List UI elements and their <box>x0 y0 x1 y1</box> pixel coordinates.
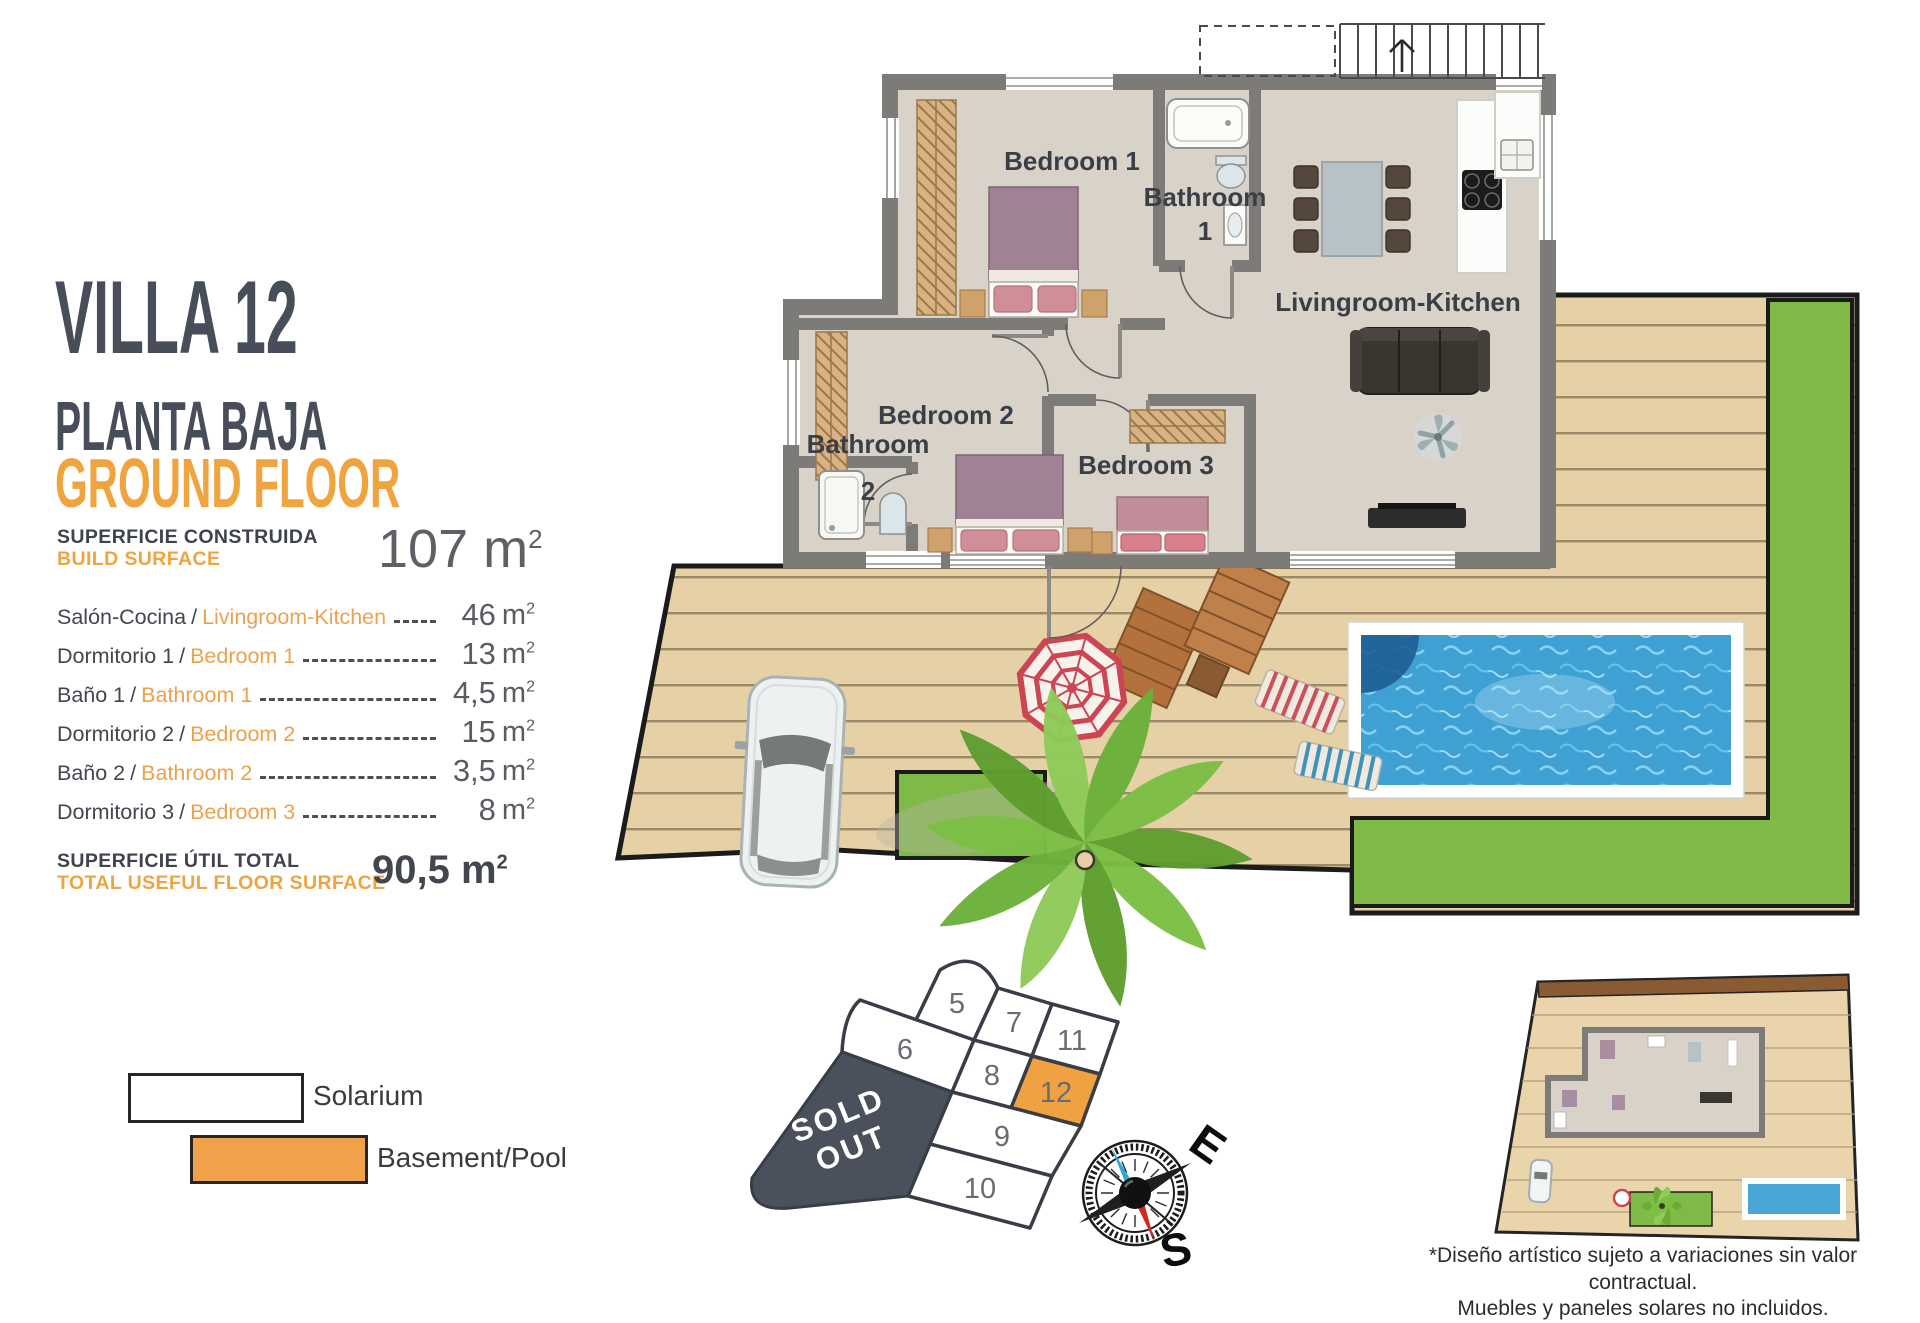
table-row: Dormitorio 2/Bedroom 2 15m2 <box>57 708 535 747</box>
compass-east-label: E <box>1181 1114 1236 1174</box>
row-unit: m <box>502 716 526 748</box>
bedroom2-label: Bedroom 2 <box>878 400 1014 430</box>
toilet2 <box>880 493 906 534</box>
plot-12-number: 12 <box>1040 1077 1072 1109</box>
mini-overview-plan <box>1496 975 1858 1240</box>
build-surface-number: 107 <box>378 519 468 579</box>
plot-9-number: 9 <box>994 1121 1010 1153</box>
ceiling-fan <box>1414 413 1462 461</box>
plot-6-number: 6 <box>897 1034 913 1066</box>
total-block: SUPERFICIE ÚTIL TOTAL TOTAL USEFUL FLOOR… <box>57 850 386 895</box>
table-row: Salón-Cocina/Livingroom-Kitchen 46m2 <box>57 591 535 630</box>
row-separator: / <box>191 605 197 630</box>
row-unit-exp: 2 <box>526 795 535 812</box>
total-label-es: SUPERFICIE ÚTIL TOTAL <box>57 850 386 872</box>
row-value: 4,5 <box>438 677 496 708</box>
plot-map: SOLD OUT 5 7 11 6 8 12 9 10 <box>751 961 1118 1228</box>
row-value: 15 <box>438 716 496 747</box>
row-value: 3,5 <box>438 755 496 786</box>
legend-label-basement-pool: Basement/Pool <box>377 1142 567 1174</box>
build-surface-exp: 2 <box>528 524 542 554</box>
dining-table <box>1322 162 1382 256</box>
table-row: Baño 1/Bathroom 1 4,5m2 <box>57 669 535 708</box>
total-value: 90,5 m2 <box>372 850 508 890</box>
legend-swatch-solarium <box>128 1073 304 1123</box>
sofa <box>1350 328 1490 394</box>
row-label-en: Livingroom-Kitchen <box>202 605 386 630</box>
compass-south-label: S <box>1155 1221 1196 1278</box>
build-surface-value: 107 m2 <box>378 522 543 576</box>
villa-title: VILLA 12 <box>55 266 298 370</box>
bedroom3-label: Bedroom 3 <box>1078 450 1214 480</box>
row-label-en: Bedroom 2 <box>190 722 295 747</box>
plot-8-number: 8 <box>984 1060 1000 1092</box>
total-number: 90,5 <box>372 848 450 892</box>
row-separator: / <box>130 683 136 708</box>
bedroom1-label: Bedroom 1 <box>1004 146 1140 176</box>
dotted-leader <box>303 737 436 740</box>
row-label-es: Salón-Cocina <box>57 605 186 630</box>
table-row: Dormitorio 3/Bedroom 3 8m2 <box>57 786 535 825</box>
build-surface-label-es: SUPERFICIE CONSTRUIDA <box>57 526 318 548</box>
bed2 <box>956 455 1063 525</box>
bathroom2-number: 2 <box>861 476 875 506</box>
bathroom2-label: Bathroom <box>807 429 930 459</box>
compass: E S <box>1079 1114 1236 1278</box>
row-separator: / <box>179 800 185 825</box>
row-separator: / <box>130 761 136 786</box>
row-label-es: Baño 1 <box>57 683 125 708</box>
total-label-en: TOTAL USEFUL FLOOR SURFACE <box>57 872 386 894</box>
plot-5-number: 5 <box>949 988 965 1020</box>
plot-7-number: 7 <box>1006 1007 1022 1039</box>
row-separator: / <box>179 722 185 747</box>
row-unit-exp: 2 <box>526 678 535 695</box>
surface-table: Salón-Cocina/Livingroom-Kitchen 46m2 Dor… <box>57 591 535 825</box>
row-unit-exp: 2 <box>526 600 535 617</box>
row-label-es: Dormitorio 1 <box>57 644 174 669</box>
dotted-leader <box>260 776 436 779</box>
row-unit: m <box>502 755 526 787</box>
row-unit: m <box>502 794 526 826</box>
row-label-en: Bedroom 1 <box>190 644 295 669</box>
bathroom1-label: Bathroom <box>1144 182 1267 212</box>
table-row: Baño 2/Bathroom 2 3,5m2 <box>57 747 535 786</box>
build-surface-label-en: BUILD SURFACE <box>57 548 318 570</box>
row-unit: m <box>502 599 526 631</box>
row-unit-exp: 2 <box>526 717 535 734</box>
row-unit: m <box>502 638 526 670</box>
total-unit-exp: 2 <box>497 852 508 874</box>
dotted-leader <box>303 659 436 662</box>
mini-car <box>1528 1159 1552 1202</box>
plot-11-number: 11 <box>1057 1025 1087 1057</box>
mini-parasol <box>1614 1190 1630 1206</box>
dining-set <box>1294 162 1410 256</box>
dotted-leader <box>260 698 436 701</box>
row-label-es: Baño 2 <box>57 761 125 786</box>
row-label-es: Dormitorio 2 <box>57 722 174 747</box>
disclaimer-line1: *Diseño artístico sujeto a variaciones s… <box>1408 1243 1878 1296</box>
house: Bedroom 1 Bathroom 1 Bedroom 2 Bedroom 3… <box>783 73 1556 638</box>
plot-10-number: 10 <box>964 1173 996 1205</box>
tv-unit <box>1368 503 1466 528</box>
dotted-leader <box>303 815 436 818</box>
total-unit: m <box>461 848 497 892</box>
build-surface-block: SUPERFICIE CONSTRUIDA BUILD SURFACE <box>57 526 318 571</box>
row-value: 46 <box>438 599 496 630</box>
bathroom1-number: 1 <box>1198 216 1212 246</box>
row-label-en: Bathroom 2 <box>141 761 252 786</box>
row-unit: m <box>502 677 526 709</box>
row-separator: / <box>179 644 185 669</box>
row-label-en: Bedroom 3 <box>190 800 295 825</box>
legend-swatch-basement-pool <box>190 1135 368 1184</box>
disclaimer: *Diseño artístico sujeto a variaciones s… <box>1408 1243 1878 1323</box>
legend-label-solarium: Solarium <box>313 1080 423 1112</box>
row-label-es: Dormitorio 3 <box>57 800 174 825</box>
pool <box>1348 622 1744 798</box>
palm-trunk <box>1076 851 1094 869</box>
row-label-en: Bathroom 1 <box>141 683 252 708</box>
disclaimer-line2: Muebles y paneles solares no incluidos. <box>1408 1296 1878 1323</box>
build-surface-unit: m <box>483 519 528 579</box>
row-unit-exp: 2 <box>526 639 535 656</box>
row-value: 8 <box>438 794 496 825</box>
subtitle-ground-floor: GROUND FLOOR <box>55 448 400 518</box>
dotted-leader <box>394 620 436 623</box>
livingroom-label: Livingroom-Kitchen <box>1275 287 1521 317</box>
table-row: Dormitorio 1/Bedroom 1 13m2 <box>57 630 535 669</box>
row-value: 13 <box>438 638 496 669</box>
stairs <box>1200 24 1545 78</box>
row-unit-exp: 2 <box>526 756 535 773</box>
